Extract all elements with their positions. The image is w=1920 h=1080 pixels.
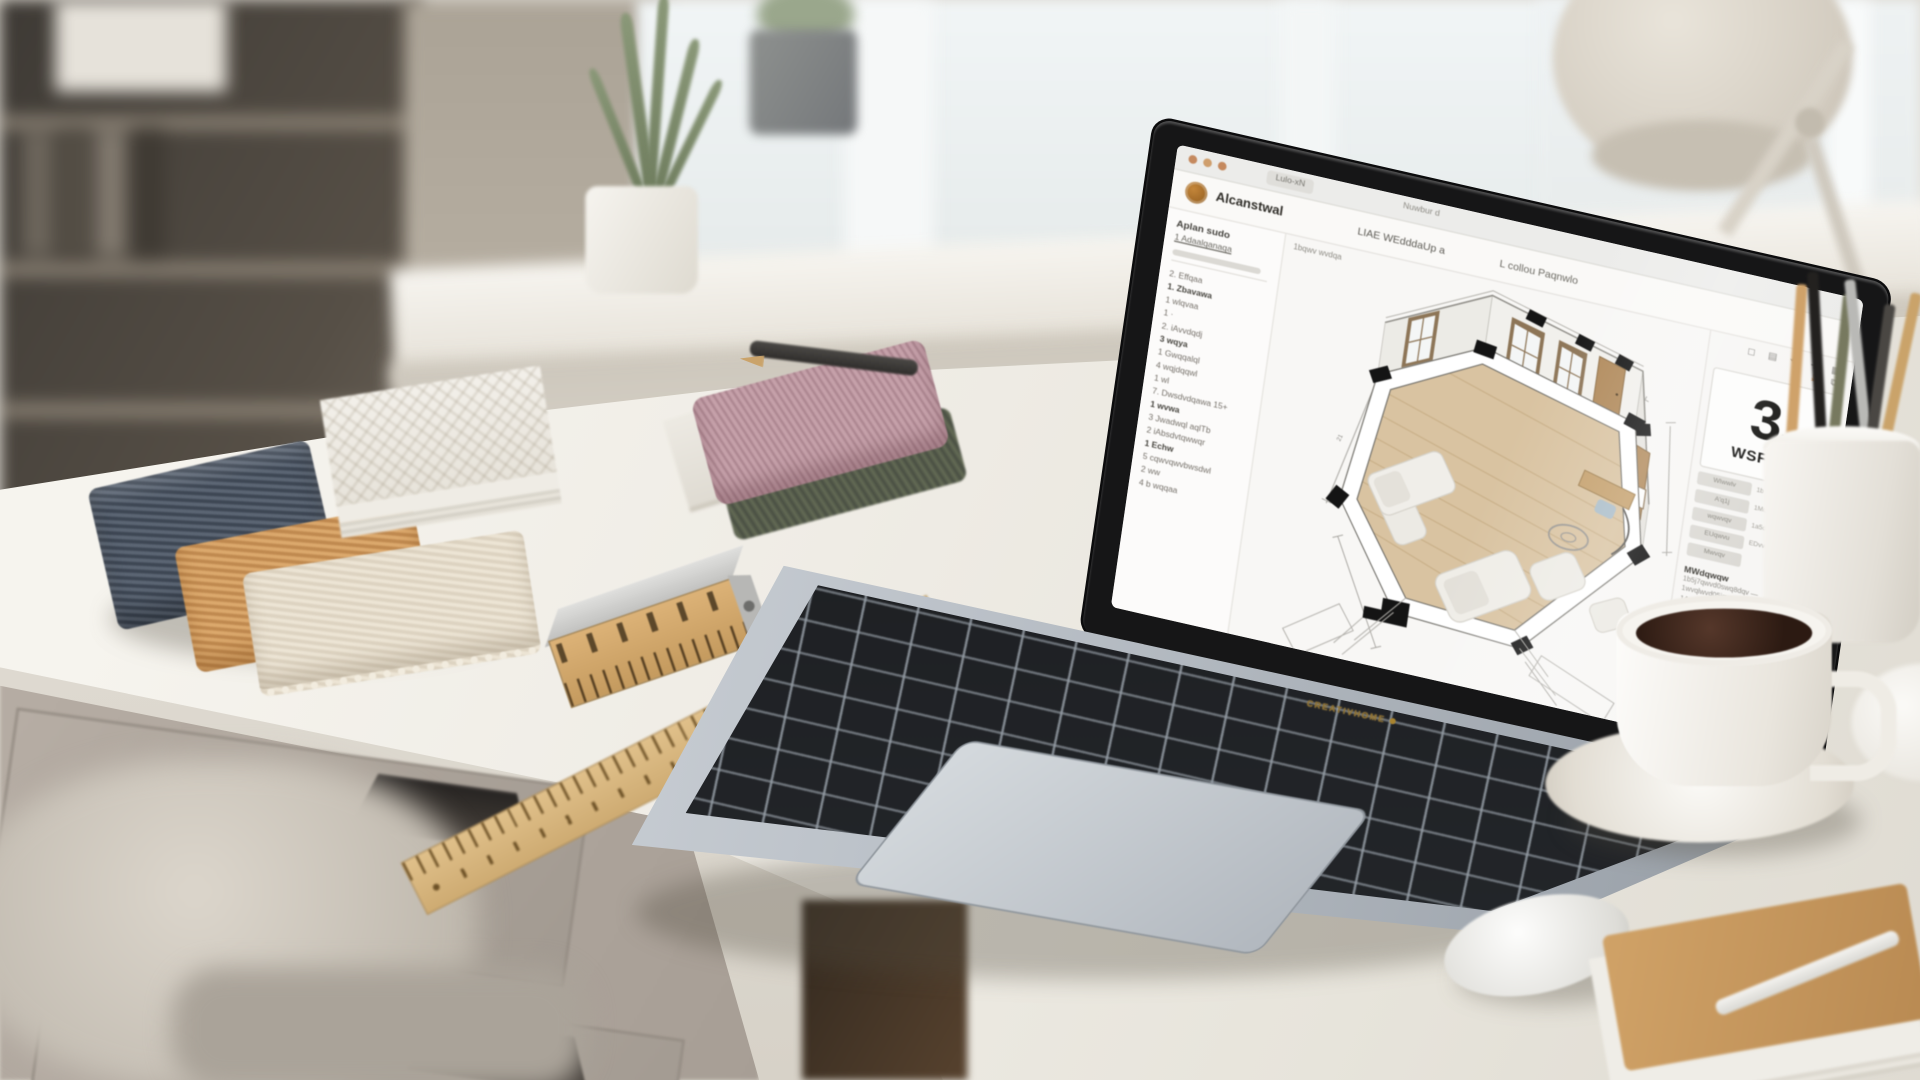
brand-dot-icon — [1388, 717, 1395, 724]
book — [59, 129, 91, 258]
paper-stack-on-shelf — [55, 0, 226, 92]
shelf-board — [0, 116, 416, 128]
window-frame — [845, 0, 933, 276]
chair-seat — [171, 967, 587, 1080]
book — [96, 129, 128, 258]
book — [22, 129, 54, 258]
menu-item[interactable]: LIAE WEdddaUp a — [1357, 225, 1446, 257]
menu-item[interactable]: L collou Paqnwlo — [1499, 257, 1579, 287]
document-label: Nuwbur d — [1402, 202, 1440, 219]
photo-viewport: Lulo-xN Nuwbur d Alcanstwal LIAE WEdddaU… — [0, 0, 1920, 1080]
plant-pot-gray — [749, 29, 857, 134]
app-name: Alcanstwal — [1215, 190, 1284, 219]
coffee — [1636, 609, 1812, 658]
plant-pot-white — [585, 186, 698, 294]
desk-scene: Lulo-xN Nuwbur d Alcanstwal LIAE WEdddaU… — [0, 0, 1920, 1080]
desk-lamp-joint — [1795, 108, 1824, 137]
close-button[interactable] — [1188, 154, 1198, 164]
minimize-button[interactable] — [1203, 158, 1213, 168]
dimension-label: 21 — [1336, 433, 1345, 443]
book — [132, 129, 164, 258]
app-logo-icon — [1184, 180, 1209, 206]
zoom-button[interactable] — [1217, 161, 1227, 171]
shelf-board — [0, 263, 416, 275]
